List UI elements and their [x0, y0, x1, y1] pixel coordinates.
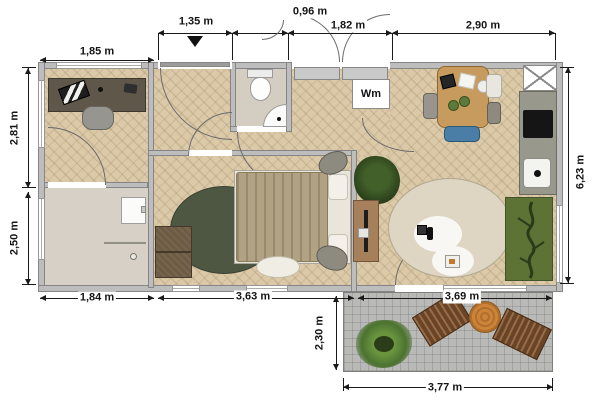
dim-label-office-height: 2,81 m	[9, 109, 22, 147]
dining-chair-blue	[444, 126, 480, 142]
corner-sink-drain	[277, 117, 281, 121]
dim-label-office-width: 1,85 m	[78, 46, 116, 59]
dim-line-kitchen	[392, 33, 555, 34]
coffee-table-item	[417, 225, 427, 235]
dim-line-office-width	[40, 60, 154, 61]
green-plate-2	[459, 96, 470, 107]
green-rug-branch-pattern	[506, 198, 554, 282]
bed-foot-rug	[256, 256, 300, 278]
toilet-bowl	[250, 77, 271, 101]
entry-door-leaf	[160, 62, 230, 67]
dim-line-office-height	[28, 68, 29, 188]
bed-pillow-top	[328, 174, 348, 200]
window-utility-left	[38, 198, 45, 260]
office-chair	[82, 106, 114, 130]
entrance-marker-icon	[187, 36, 203, 47]
utility-drain	[130, 253, 137, 260]
vent-shaft	[523, 65, 557, 91]
dim-label-bedroom-width: 3,63 m	[234, 291, 272, 304]
potted-plant	[354, 156, 400, 204]
dim-line-utility-height	[28, 192, 29, 285]
washing-machine-label: Wm	[361, 88, 381, 100]
dining-chair-top-right	[486, 74, 502, 98]
ext-tick	[288, 33, 289, 60]
ext-tick	[555, 33, 556, 60]
dim-line-building-height	[568, 67, 569, 283]
window-utility-bottom	[172, 285, 200, 292]
desk-mouse	[98, 87, 103, 92]
utility-washbasin-tap	[141, 206, 146, 213]
dim-leader-wc	[262, 20, 284, 40]
dim-label-patio-height: 2,30 m	[314, 314, 327, 352]
wall-office-hall	[148, 62, 154, 288]
window-living-right	[556, 205, 563, 283]
dim-label-utility-height: 2,50 m	[9, 219, 22, 257]
tray-item	[449, 259, 455, 264]
kitchen-sink-drain	[534, 170, 541, 177]
patio-door-opening	[395, 285, 443, 292]
dim-line-wc	[232, 33, 288, 34]
floor-plan-canvas: Wm	[0, 0, 600, 400]
remote-control	[427, 227, 433, 240]
utility-partition	[104, 242, 146, 244]
dim-line-patio-height	[336, 296, 337, 370]
dim-label-utility-width: 1,84 m	[78, 292, 116, 305]
dim-label-patio-width: 3,77 m	[426, 382, 464, 395]
ext-tick	[560, 283, 574, 284]
patio-plant-center	[374, 336, 394, 352]
double-door-leaf-left	[294, 67, 340, 80]
dim-line-entry	[288, 33, 392, 34]
dining-chair-right	[487, 102, 501, 124]
desk-phone	[123, 83, 137, 94]
dim-label-entry-width: 1,82 m	[329, 20, 367, 33]
ext-tick	[232, 33, 233, 60]
dining-chair-left	[423, 93, 438, 119]
washing-machine: Wm	[352, 79, 390, 109]
dresser	[155, 226, 192, 278]
paper-on-table	[458, 72, 477, 89]
tv-console-item	[358, 228, 369, 238]
green-rug	[505, 197, 553, 281]
window-office-left	[38, 80, 45, 148]
ext-tick	[392, 33, 393, 60]
bed-duvet	[236, 172, 328, 262]
dim-label-building-height: 6,23 m	[575, 153, 588, 191]
dim-label-kitchen-width: 2,90 m	[464, 20, 502, 33]
dim-label-wc-width: 0,96 m	[291, 6, 329, 19]
dim-line-entry-door	[158, 33, 232, 34]
window-office-top	[56, 62, 142, 69]
cooktop	[523, 110, 553, 138]
dim-label-living-width: 3,69 m	[443, 291, 481, 304]
dim-label-entry-door: 1,35 m	[177, 16, 215, 29]
ext-tick	[158, 33, 159, 60]
green-plate-1	[448, 100, 459, 111]
